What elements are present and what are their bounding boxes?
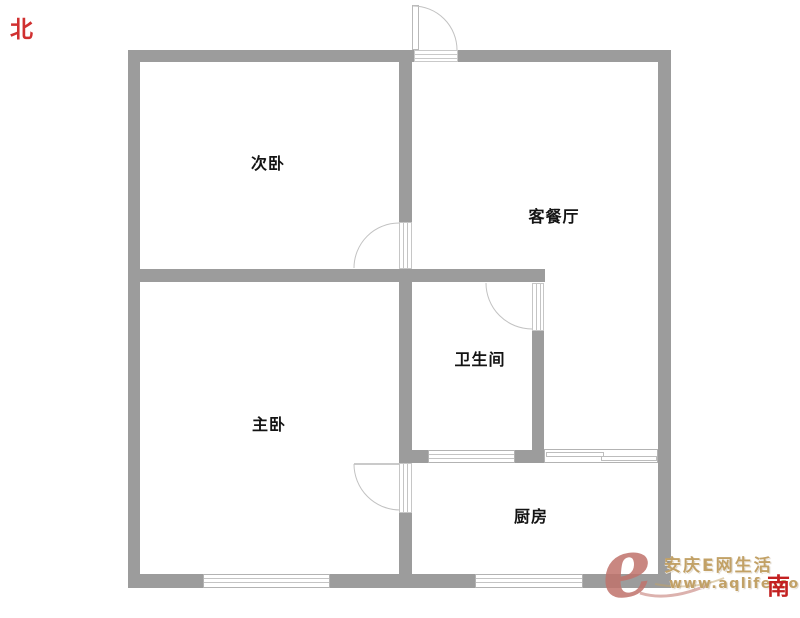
room-label-master-bedroom: 主卧: [224, 411, 314, 435]
wall-spine-middle: [399, 269, 412, 463]
master-bedroom-door-arc: [354, 464, 400, 510]
room-label-kitchen: 厨房: [501, 503, 561, 527]
kitchen-sliding-door: [544, 449, 658, 463]
kitchen-window: [475, 574, 583, 588]
sliding-door-panel-right: [601, 456, 657, 461]
wall-mid-right-segment: [412, 269, 545, 282]
bathroom-door-arc: [486, 283, 532, 329]
wall-bottom-segment-1: [128, 574, 203, 588]
wall-mid-left-segment: [140, 269, 399, 282]
compass-south-label: 南: [767, 567, 790, 601]
wall-spine-lower: [399, 513, 412, 574]
wall-kitchen-top-segment-1: [412, 450, 428, 463]
secondary-bedroom-door-arc: [354, 223, 399, 268]
wall-right: [658, 50, 671, 588]
wall-top-right-segment: [458, 50, 671, 62]
entry-door-leaf: [412, 5, 419, 50]
bathroom-window: [428, 450, 515, 463]
watermark-site-name: 安庆E网生活: [664, 551, 773, 576]
master-bedroom-window: [203, 574, 330, 588]
floor-plan: 次卧 客餐厅 卫生间 主卧 厨房 北 南 e 安庆E网生活 www.aqlife…: [0, 0, 800, 600]
secondary-bedroom-door-sill: [399, 222, 412, 269]
wall-top-left-segment: [128, 50, 414, 62]
sliding-door-panel-left: [546, 452, 604, 457]
watermark-logo: e: [596, 525, 658, 611]
wall-kitchen-top-segment-2: [515, 450, 544, 463]
room-label-secondary-bedroom: 次卧: [223, 150, 313, 174]
bathroom-door-sill: [532, 283, 544, 331]
wall-left: [128, 50, 140, 588]
compass-north-label: 北: [10, 10, 33, 44]
room-label-bathroom: 卫生间: [435, 346, 525, 370]
wall-bathroom-right: [532, 331, 544, 450]
room-label-living-dining: 客餐厅: [509, 203, 599, 227]
master-bedroom-door-sill: [399, 463, 412, 513]
wall-bottom-segment-2: [330, 574, 475, 588]
entry-door-arc: [413, 6, 457, 50]
entry-door-sill: [414, 50, 458, 62]
wall-spine-upper: [399, 62, 412, 222]
